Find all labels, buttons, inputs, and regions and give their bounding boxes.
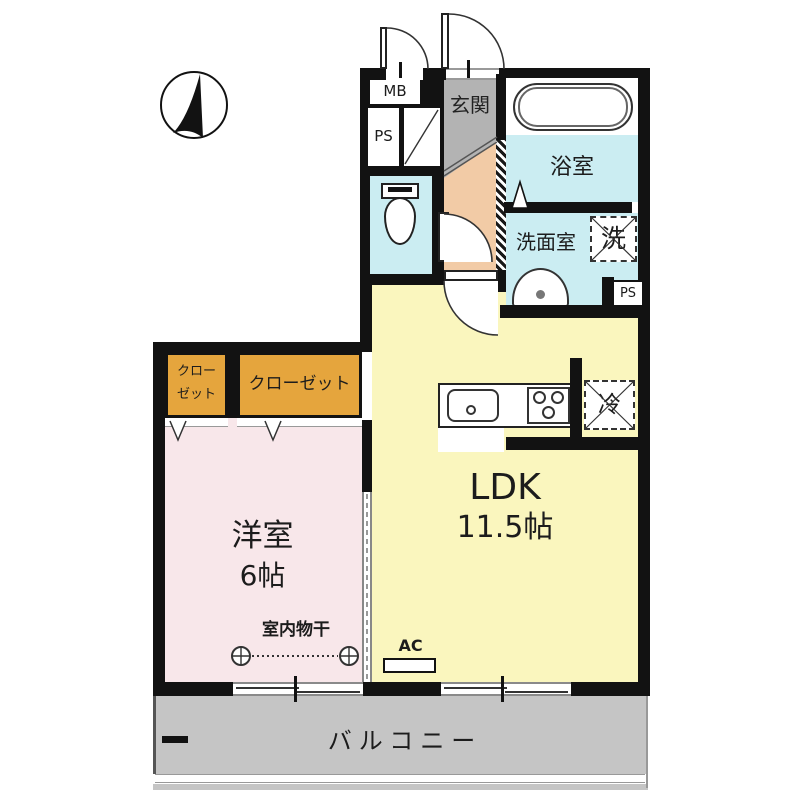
outer-wall-top-1	[360, 68, 386, 80]
pipe-space-side: PS	[612, 280, 644, 307]
laundry-label: 室内物干	[246, 620, 346, 642]
stove-burner-1	[533, 391, 546, 404]
floor-plan: MB PS 玄関 浴室 洗面室 洗 PS クロー ゼット クローゼッ	[0, 0, 800, 800]
bathroom-bottom-wall	[504, 202, 632, 213]
closet-small-label2: ゼット	[168, 383, 225, 407]
closet-divider	[228, 352, 237, 418]
ldk-size-label: 11.5帖	[420, 510, 590, 546]
washbasin-drain	[536, 290, 545, 299]
bedroom-window-tick	[294, 676, 297, 702]
closet-small-label: クロー	[168, 360, 225, 384]
outer-wall-bottom-1	[153, 682, 233, 696]
ac-unit-box	[383, 658, 436, 673]
stove-burner-2	[551, 391, 564, 404]
mb-door-arc	[387, 28, 428, 69]
outer-wall-right	[638, 68, 650, 696]
kitchen-lower-wall	[506, 437, 648, 450]
entrance-door-leaf	[441, 13, 449, 69]
toilet-lid-line	[388, 187, 412, 192]
ldk-window-tick	[501, 676, 504, 702]
closet-top-wall	[153, 342, 372, 352]
shoe-cabinet	[404, 108, 440, 166]
ac-label: AC	[384, 636, 437, 656]
room-sliding-door	[362, 492, 372, 682]
outer-wall-bottom-2	[363, 682, 441, 696]
bathtub-inner	[518, 87, 628, 127]
pipe-space-top: PS	[368, 108, 399, 166]
outer-wall-bottom-3	[571, 682, 650, 696]
entrance-door-tick	[467, 60, 470, 78]
balcony-deck-band	[155, 774, 645, 783]
washroom-label: 洗面室	[506, 228, 586, 256]
meter-box: MB	[370, 80, 420, 104]
outer-wall-top-2	[423, 68, 446, 80]
genkan-label: 玄関	[440, 92, 500, 118]
stove-burner-3	[542, 406, 555, 419]
toilet-door-leaf	[438, 212, 449, 262]
compass-circle	[160, 71, 228, 139]
balcony-edge	[153, 784, 648, 790]
mb-door-tick	[399, 62, 402, 78]
balcony-label: バルコニー	[275, 726, 535, 758]
mb-door-leaf	[380, 27, 387, 69]
balcony-right-edge	[646, 696, 648, 788]
ldk-window	[441, 682, 571, 696]
ldk-label: LDK	[420, 468, 590, 508]
washing-machine-box: 洗	[590, 216, 637, 262]
ldk-door-leaf	[444, 270, 498, 281]
kitchen-sink-drain	[466, 405, 476, 415]
closet-large-label: クローゼット	[240, 352, 359, 418]
kitchen-side-wall	[570, 358, 582, 438]
closet-large-track	[237, 418, 362, 427]
closet-small-track	[165, 418, 228, 427]
kitchen-counter-base	[438, 427, 504, 452]
bedroom-size-label: 6帖	[180, 558, 345, 594]
divider-wall	[362, 420, 372, 492]
bedroom-label: 洋室	[180, 516, 345, 556]
balcony-partition-dash	[162, 736, 188, 743]
bedroom-window	[233, 682, 363, 696]
fridge-box: 冷	[584, 380, 635, 430]
bathroom-label: 浴室	[506, 150, 638, 186]
mb-door-opening	[386, 68, 423, 80]
entrance-threshold	[446, 68, 499, 80]
entrance-door-arc	[449, 14, 504, 69]
bedroom-left-wall	[153, 342, 165, 696]
